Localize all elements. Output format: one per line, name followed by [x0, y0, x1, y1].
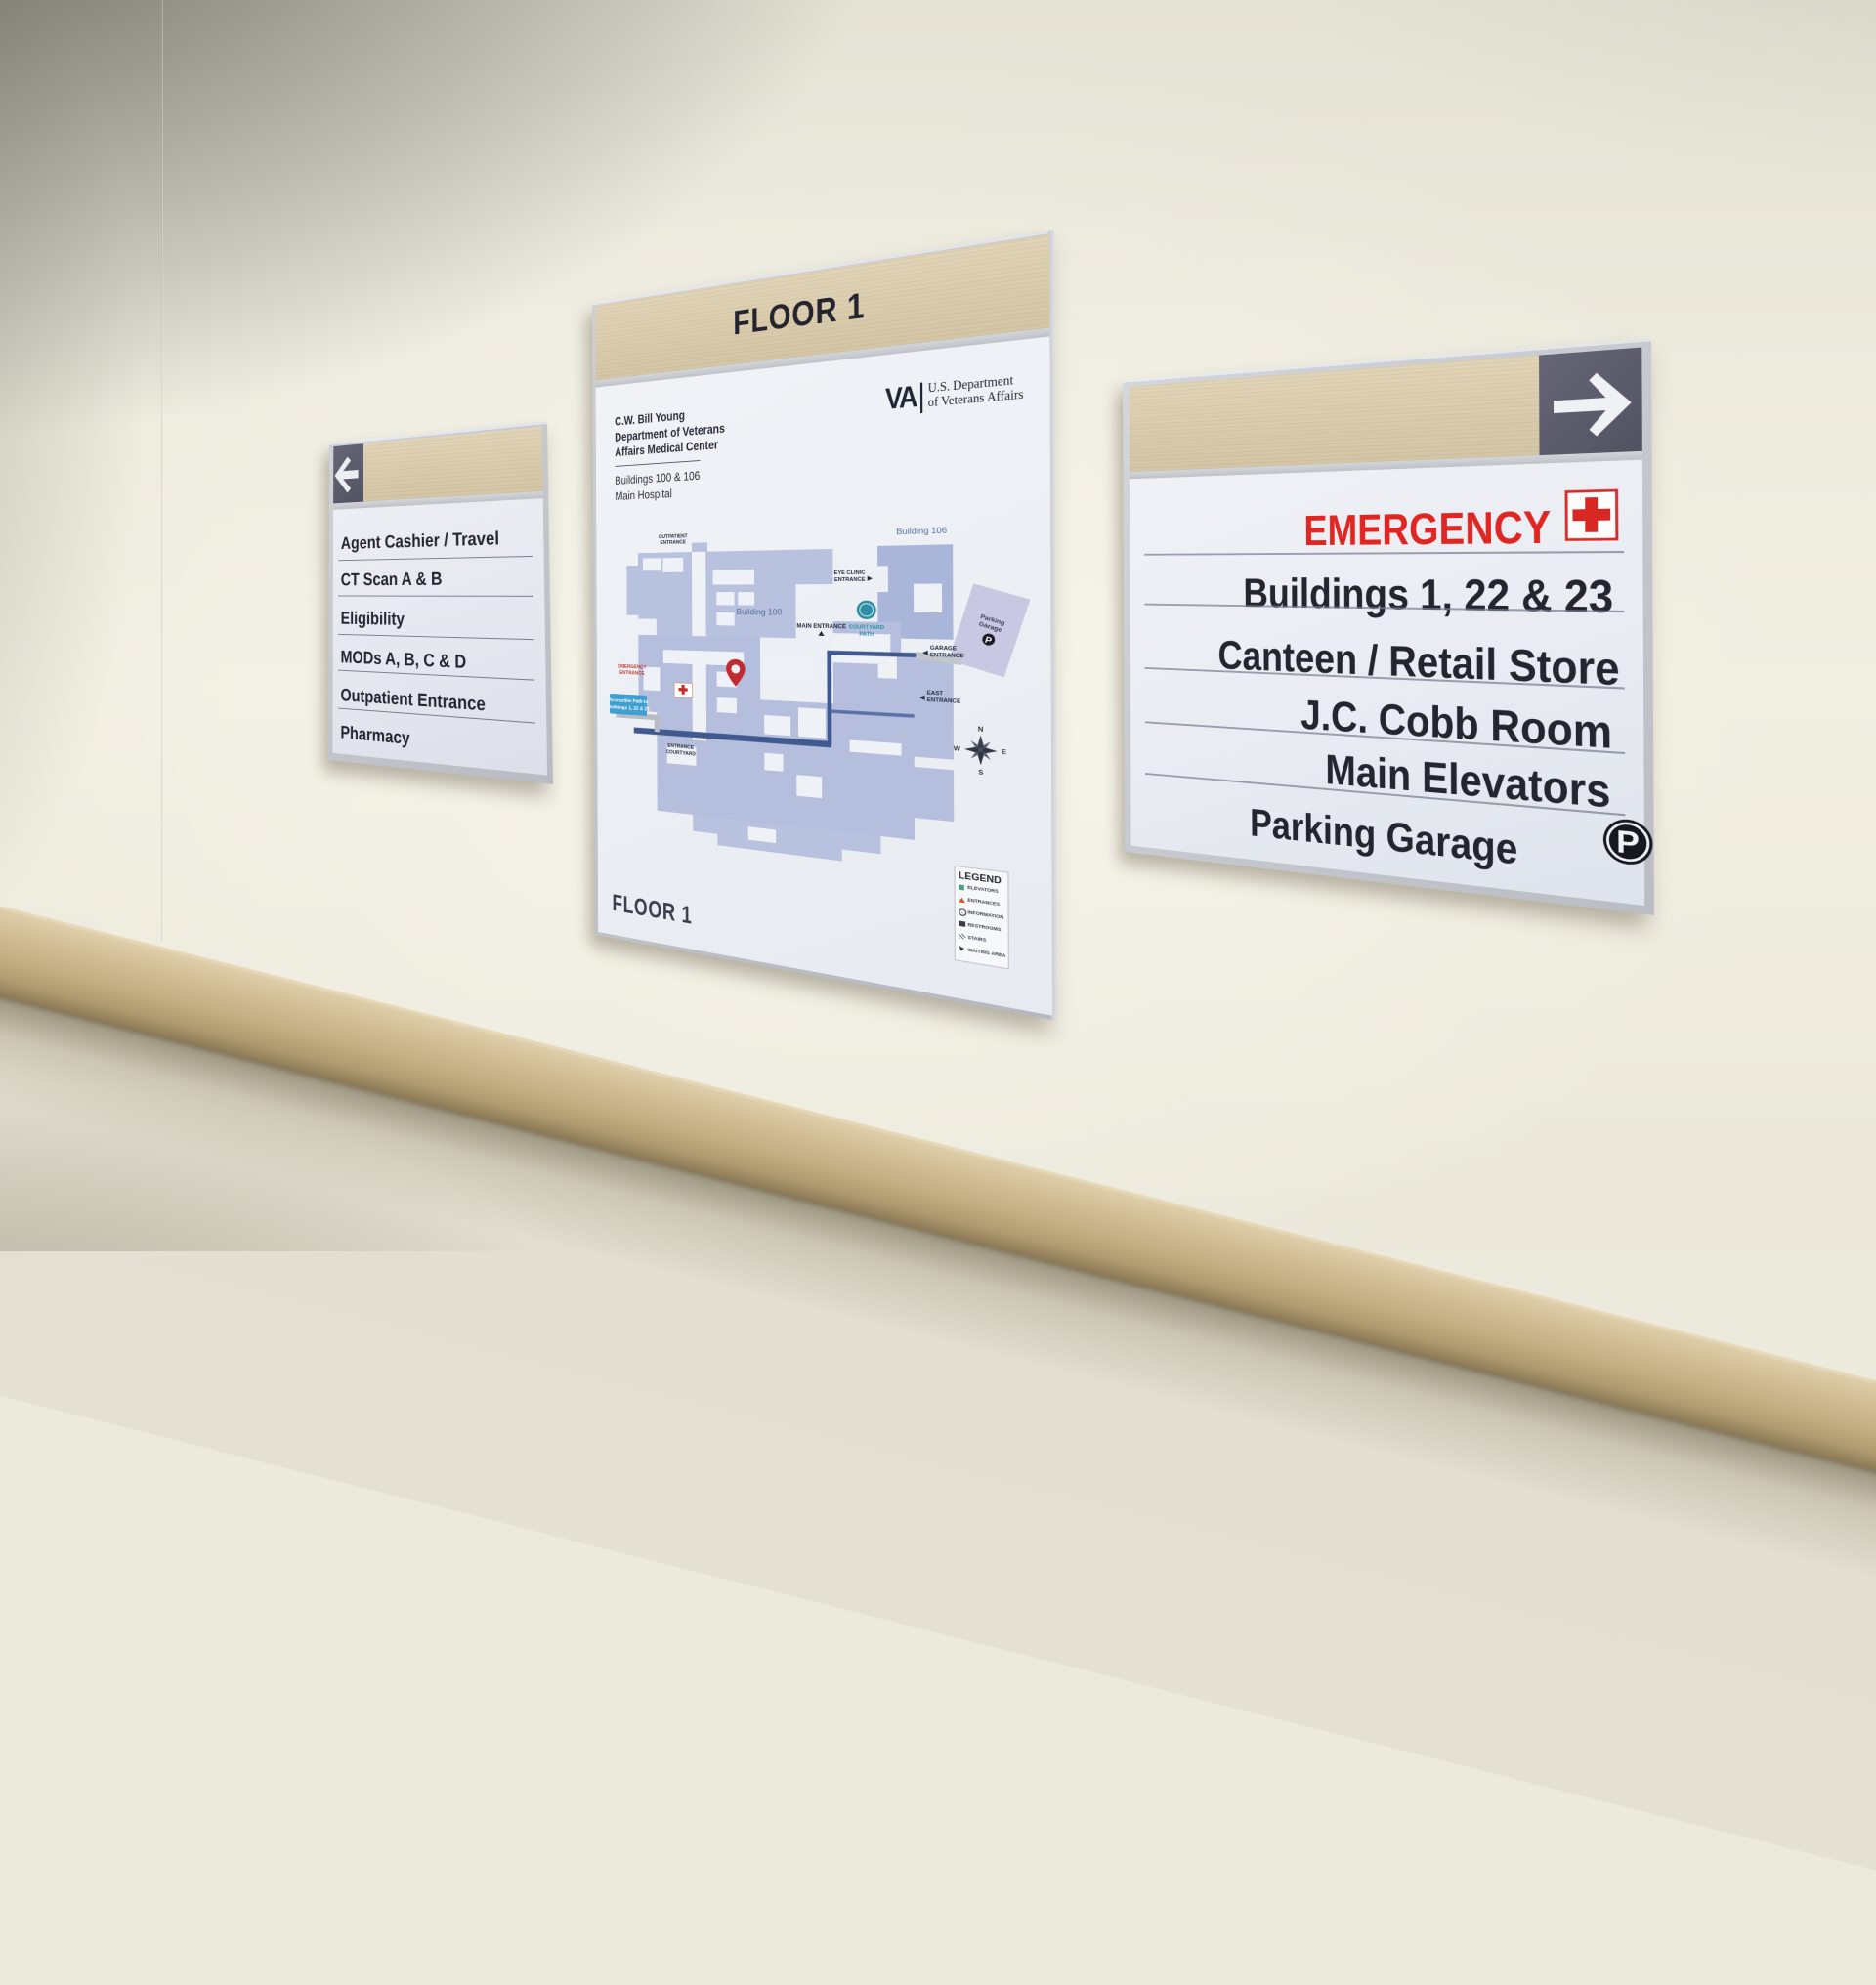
svg-text:ENTRANCE: ENTRANCE — [660, 538, 686, 545]
svg-text:PATH: PATH — [859, 630, 874, 637]
svg-text:Building 106: Building 106 — [896, 527, 947, 537]
svg-text:COURTYARD: COURTYARD — [849, 623, 884, 630]
svg-text:Building 100: Building 100 — [736, 609, 782, 617]
svg-text:S: S — [978, 769, 984, 778]
svg-text:W: W — [954, 745, 961, 754]
svg-text:E: E — [1002, 748, 1007, 757]
svg-text:ENTRANCE: ENTRANCE — [834, 575, 866, 582]
svg-text:ENTRANCE: ENTRANCE — [930, 652, 964, 659]
svg-text:N: N — [978, 726, 984, 735]
svg-text:MAIN ENTRANCE: MAIN ENTRANCE — [796, 622, 846, 629]
svg-text:ENTRANCE: ENTRANCE — [619, 669, 645, 676]
svg-text:EYE CLINIC: EYE CLINIC — [834, 569, 866, 575]
svg-text:P: P — [1616, 824, 1640, 862]
